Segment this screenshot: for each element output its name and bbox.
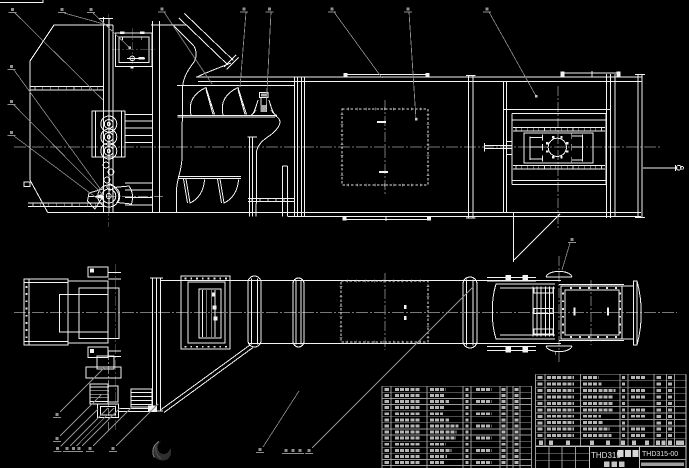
svg-text:THD315-00: THD315-00 bbox=[642, 451, 678, 458]
svg-text:THD315: THD315 bbox=[591, 451, 621, 460]
